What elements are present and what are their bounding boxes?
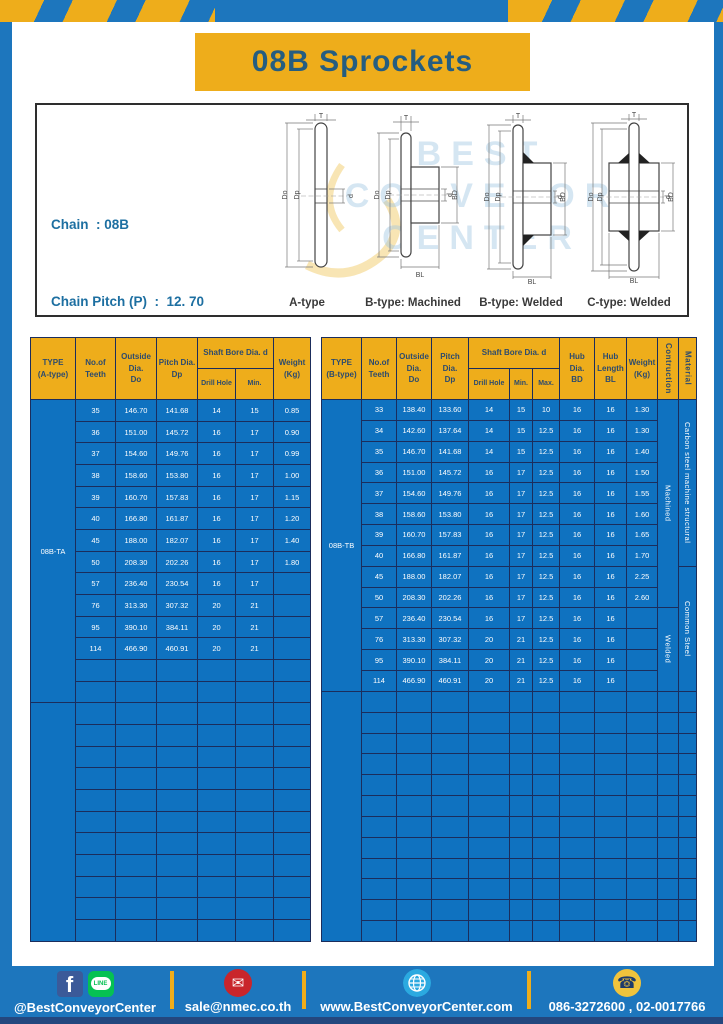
data-cell <box>116 681 157 703</box>
data-cell: 149.76 <box>157 443 198 465</box>
data-cell <box>560 754 595 775</box>
data-cell <box>432 879 469 900</box>
data-cell <box>658 691 679 712</box>
data-cell <box>510 691 533 712</box>
data-cell: 202.26 <box>432 587 469 608</box>
data-cell <box>469 796 510 817</box>
dim-label-bl: BL <box>528 279 537 285</box>
data-cell: 16 <box>198 486 236 508</box>
data-cell <box>76 725 116 747</box>
data-cell: 153.80 <box>432 504 469 525</box>
data-cell: 2.60 <box>627 587 658 608</box>
column-header: TYPE(A-type) <box>31 338 76 400</box>
data-cell: 34 <box>362 420 397 441</box>
data-cell <box>658 858 679 879</box>
data-cell <box>469 754 510 775</box>
data-cell: 16 <box>560 504 595 525</box>
data-cell <box>595 712 627 733</box>
data-cell <box>362 754 397 775</box>
data-cell <box>510 900 533 921</box>
data-cell: 16 <box>198 508 236 530</box>
data-cell <box>560 733 595 754</box>
data-cell <box>362 775 397 796</box>
data-cell <box>76 703 116 725</box>
data-cell: 1.50 <box>627 462 658 483</box>
data-cell: 154.60 <box>397 483 432 504</box>
data-cell: 16 <box>560 587 595 608</box>
data-cell <box>560 775 595 796</box>
data-cell <box>627 858 658 879</box>
data-cell: 16 <box>198 443 236 465</box>
drawing-caption: B-type: Machined <box>365 297 461 309</box>
data-cell <box>274 898 311 920</box>
b-type-machined-drawing: T Do Dp d <box>363 111 463 309</box>
data-cell: 151.00 <box>116 421 157 443</box>
email-glyph: ✉ <box>232 974 245 992</box>
data-cell <box>362 921 397 942</box>
data-cell <box>627 733 658 754</box>
data-cell <box>469 691 510 712</box>
data-cell <box>533 816 560 837</box>
data-cell <box>595 837 627 858</box>
data-cell: 1.70 <box>627 545 658 566</box>
data-cell <box>198 898 236 920</box>
data-cell <box>198 876 236 898</box>
column-header: OutsideDia.Do <box>397 338 432 400</box>
data-cell <box>362 837 397 858</box>
data-cell: 146.70 <box>116 400 157 422</box>
data-cell: 137.64 <box>432 420 469 441</box>
data-cell: 142.60 <box>397 420 432 441</box>
phone-icon: ☎ <box>613 969 641 997</box>
data-cell <box>432 816 469 837</box>
drawing-caption: C-type: Welded <box>587 297 671 309</box>
data-cell <box>157 876 198 898</box>
column-header: Pitch Dia.Dp <box>432 338 469 400</box>
spec-line: Chain : 08B <box>51 212 276 238</box>
data-cell <box>274 660 311 682</box>
data-cell <box>658 816 679 837</box>
data-cell <box>560 712 595 733</box>
data-cell <box>432 733 469 754</box>
data-cell: 157.83 <box>157 486 198 508</box>
construction-cell: Welded <box>658 608 679 691</box>
data-cell <box>595 733 627 754</box>
data-cell: 166.80 <box>397 545 432 566</box>
data-cell <box>116 725 157 747</box>
data-cell <box>560 879 595 900</box>
data-cell: 313.30 <box>397 629 432 650</box>
data-cell <box>274 920 311 942</box>
data-cell: 384.11 <box>432 650 469 671</box>
data-cell: 16 <box>560 608 595 629</box>
data-cell: 466.90 <box>397 670 432 691</box>
data-cell: 16 <box>560 400 595 421</box>
data-cell: 145.72 <box>157 421 198 443</box>
data-cell: 17 <box>510 587 533 608</box>
data-cell: 161.87 <box>432 545 469 566</box>
data-cell: 17 <box>236 573 274 595</box>
data-cell <box>157 660 198 682</box>
data-cell: 133.60 <box>432 400 469 421</box>
data-cell <box>510 712 533 733</box>
data-cell: 1.30 <box>627 400 658 421</box>
data-cell <box>658 796 679 817</box>
data-cell <box>595 691 627 712</box>
data-cell <box>157 898 198 920</box>
title-banner: 08B Sprockets <box>195 33 530 91</box>
data-cell: 20 <box>469 670 510 691</box>
data-cell: 20 <box>469 629 510 650</box>
data-cell: 15 <box>510 400 533 421</box>
data-cell: 2.25 <box>627 566 658 587</box>
spec-line: Chain Pitch (P) : 12. 70 <box>51 289 276 315</box>
data-cell: 1.20 <box>274 508 311 530</box>
dim-label-do: Do <box>374 190 381 199</box>
data-cell <box>397 837 432 858</box>
data-cell: 188.00 <box>397 566 432 587</box>
dim-label-bd: BD <box>452 190 459 200</box>
data-cell: 188.00 <box>116 530 157 552</box>
data-cell <box>198 790 236 812</box>
data-cell: 16 <box>560 441 595 462</box>
data-cell <box>157 681 198 703</box>
data-cell <box>679 900 697 921</box>
footer-phone: ☎ 086-3272600 , 02-0017766 <box>531 966 723 1017</box>
data-cell <box>362 858 397 879</box>
data-cell <box>274 595 311 617</box>
data-cell: 12.5 <box>533 462 560 483</box>
data-cell: 114 <box>76 638 116 660</box>
data-cell: 16 <box>595 441 627 462</box>
data-cell <box>362 712 397 733</box>
data-cell: 160.70 <box>397 525 432 546</box>
data-cell: 0.85 <box>274 400 311 422</box>
data-cell: 0.99 <box>274 443 311 465</box>
data-cell: 21 <box>236 638 274 660</box>
data-cell <box>76 660 116 682</box>
data-cell <box>679 879 697 900</box>
dim-label-dp: Dp <box>294 190 301 199</box>
data-cell <box>533 921 560 942</box>
data-cell <box>432 858 469 879</box>
data-cell <box>198 811 236 833</box>
data-cell: 460.91 <box>432 670 469 691</box>
data-cell: 236.40 <box>116 573 157 595</box>
data-cell: 12.5 <box>533 504 560 525</box>
data-cell: 36 <box>362 462 397 483</box>
line-icon: LINE <box>88 971 114 997</box>
data-cell <box>510 796 533 817</box>
catalog-page: 08B Sprockets BEST CONVEYOR CENTER Chain… <box>0 0 723 1024</box>
data-cell: 37 <box>76 443 116 465</box>
data-cell: 384.11 <box>157 616 198 638</box>
data-cell <box>157 768 198 790</box>
data-cell: 21 <box>510 650 533 671</box>
data-cell <box>274 855 311 877</box>
phone-numbers: 086-3272600 , 02-0017766 <box>549 999 706 1014</box>
data-cell <box>469 858 510 879</box>
footer-bottom-strip <box>0 1017 723 1024</box>
content-area: 08B Sprockets BEST CONVEYOR CENTER Chain… <box>12 22 714 966</box>
data-cell: 0.90 <box>274 421 311 443</box>
column-header: Shaft Bore Dia. d <box>469 338 560 369</box>
data-cell <box>432 775 469 796</box>
data-cell <box>679 816 697 837</box>
data-cell: 12.5 <box>533 650 560 671</box>
data-cell <box>560 816 595 837</box>
data-cell <box>627 796 658 817</box>
data-cell <box>679 754 697 775</box>
data-cell: 154.60 <box>116 443 157 465</box>
data-cell <box>76 746 116 768</box>
data-cell: 158.60 <box>397 504 432 525</box>
data-cell <box>627 670 658 691</box>
data-cell: 166.80 <box>116 508 157 530</box>
data-cell: 16 <box>595 650 627 671</box>
dim-label-t: T <box>516 113 521 120</box>
data-cell: 17 <box>236 443 274 465</box>
data-cell <box>595 816 627 837</box>
data-cell: 17 <box>510 462 533 483</box>
data-cell: 12.5 <box>533 629 560 650</box>
data-cell <box>533 837 560 858</box>
data-cell <box>362 900 397 921</box>
footer-email: ✉ sale@nmec.co.th <box>174 966 302 1017</box>
data-cell: 12.5 <box>533 441 560 462</box>
data-cell: 36 <box>76 421 116 443</box>
data-cell: 1.30 <box>627 420 658 441</box>
data-cell: 16 <box>595 400 627 421</box>
social-handle: @BestConveyorCenter <box>14 1000 156 1015</box>
data-cell: 35 <box>362 441 397 462</box>
data-cell <box>510 816 533 837</box>
data-cell: 16 <box>560 525 595 546</box>
data-cell <box>679 837 697 858</box>
data-cell <box>510 775 533 796</box>
data-cell <box>157 790 198 812</box>
data-cell <box>560 900 595 921</box>
data-cell <box>469 775 510 796</box>
data-cell: 17 <box>510 483 533 504</box>
data-cell <box>116 660 157 682</box>
data-cell: 16 <box>595 566 627 587</box>
data-cell <box>397 775 432 796</box>
data-cell: 15 <box>510 441 533 462</box>
data-cell: 15 <box>236 400 274 422</box>
data-cell <box>595 754 627 775</box>
data-cell <box>432 900 469 921</box>
data-cell <box>560 858 595 879</box>
email-address: sale@nmec.co.th <box>185 999 292 1014</box>
data-cell: 390.10 <box>116 616 157 638</box>
data-cell: 16 <box>595 608 627 629</box>
technical-drawing-box: BEST CONVEYOR CENTER Chain : 08B Chain P… <box>35 103 689 317</box>
dim-label-bl: BL <box>416 272 425 279</box>
data-cell <box>116 920 157 942</box>
data-cell <box>236 876 274 898</box>
material-cell: Carbon steel machine structural <box>679 400 697 567</box>
data-cell <box>157 855 198 877</box>
data-cell: 76 <box>76 595 116 617</box>
data-cell: 16 <box>595 504 627 525</box>
data-cell <box>533 796 560 817</box>
data-cell <box>533 900 560 921</box>
data-cell <box>658 879 679 900</box>
data-cell <box>469 921 510 942</box>
data-cell <box>533 691 560 712</box>
data-cell: 39 <box>76 486 116 508</box>
a-type-table: TYPE(A-type)No.ofTeethOutsideDia.DoPitch… <box>30 337 311 942</box>
data-cell: 12.5 <box>533 670 560 691</box>
data-cell <box>533 858 560 879</box>
data-cell <box>198 681 236 703</box>
data-cell <box>397 796 432 817</box>
data-cell <box>627 650 658 671</box>
data-cell <box>595 775 627 796</box>
data-cell: 16 <box>560 483 595 504</box>
column-header: Pitch Dia.Dp <box>157 338 198 400</box>
data-cell: 208.30 <box>397 587 432 608</box>
data-cell <box>469 816 510 837</box>
data-cell: 390.10 <box>397 650 432 671</box>
data-cell: 16 <box>469 525 510 546</box>
type-cell: 08B-TB <box>322 400 362 692</box>
data-cell: 460.91 <box>157 638 198 660</box>
data-cell <box>76 833 116 855</box>
data-cell <box>533 775 560 796</box>
column-header: No.ofTeeth <box>76 338 116 400</box>
data-cell <box>362 879 397 900</box>
b-type-table: TYPE(B-type)No.ofTeethOutsideDia.DoPitch… <box>321 337 697 942</box>
a-type-drawing: T Do Dp d A-type <box>259 111 355 309</box>
data-cell: 40 <box>362 545 397 566</box>
data-cell: 160.70 <box>116 486 157 508</box>
data-cell <box>76 876 116 898</box>
dim-label-t: T <box>632 112 637 119</box>
data-cell: 35 <box>76 400 116 422</box>
data-cell <box>198 660 236 682</box>
data-cell <box>236 660 274 682</box>
data-cell <box>76 768 116 790</box>
data-cell <box>627 879 658 900</box>
data-cell: 17 <box>236 530 274 552</box>
data-cell: 38 <box>362 504 397 525</box>
data-cell <box>679 712 697 733</box>
data-cell: 20 <box>198 616 236 638</box>
phone-glyph: ☎ <box>617 973 637 993</box>
data-cell <box>533 733 560 754</box>
data-cell: 202.26 <box>157 551 198 573</box>
data-cell: 16 <box>560 420 595 441</box>
data-cell <box>679 775 697 796</box>
material-cell: Common Steel <box>679 566 697 691</box>
data-cell: 208.30 <box>116 551 157 573</box>
data-cell: 16 <box>595 525 627 546</box>
data-cell: 50 <box>362 587 397 608</box>
column-header: OutsideDia.Do <box>116 338 157 400</box>
data-cell <box>116 898 157 920</box>
data-cell: 12.5 <box>533 608 560 629</box>
data-cell <box>116 703 157 725</box>
data-cell: 38 <box>76 465 116 487</box>
data-cell <box>595 921 627 942</box>
data-cell: 17 <box>236 508 274 530</box>
data-cell <box>595 858 627 879</box>
data-cell: 17 <box>236 551 274 573</box>
footer: f LINE @BestConveyorCenter ✉ sale@nmec.c… <box>0 966 723 1024</box>
line-bubble-text: LINE <box>91 977 111 990</box>
data-cell <box>274 768 311 790</box>
column-header: Material <box>679 338 697 400</box>
data-cell <box>510 879 533 900</box>
data-cell <box>274 833 311 855</box>
data-cell: 33 <box>362 400 397 421</box>
data-cell <box>432 796 469 817</box>
data-cell <box>76 898 116 920</box>
data-cell: 16 <box>595 670 627 691</box>
data-cell: 157.83 <box>432 525 469 546</box>
data-cell <box>274 876 311 898</box>
data-cell: 12.5 <box>533 525 560 546</box>
data-cell: 1.40 <box>627 441 658 462</box>
type-cell: 08B-TA <box>31 400 76 703</box>
data-cell: 16 <box>198 465 236 487</box>
data-cell: 17 <box>510 608 533 629</box>
data-cell: 37 <box>362 483 397 504</box>
column-subheader: Drill Hole <box>469 369 510 400</box>
data-cell <box>198 703 236 725</box>
data-cell <box>76 855 116 877</box>
data-cell <box>560 796 595 817</box>
data-cell: 1.65 <box>627 525 658 546</box>
data-cell <box>510 754 533 775</box>
data-cell: 1.00 <box>274 465 311 487</box>
data-cell: 16 <box>469 504 510 525</box>
data-cell: 466.90 <box>116 638 157 660</box>
data-cell <box>658 754 679 775</box>
data-cell: 16 <box>595 629 627 650</box>
top-bar <box>0 0 723 22</box>
data-cell: 21 <box>236 616 274 638</box>
corner-stripes-left <box>0 0 215 22</box>
data-cell: 16 <box>595 483 627 504</box>
data-cell <box>274 725 311 747</box>
data-cell: 45 <box>76 530 116 552</box>
data-cell <box>397 733 432 754</box>
data-cell <box>236 703 274 725</box>
data-cell: 20 <box>198 638 236 660</box>
data-cell: 307.32 <box>432 629 469 650</box>
data-cell <box>157 920 198 942</box>
data-cell: 16 <box>560 545 595 566</box>
data-cell <box>397 900 432 921</box>
column-header: Hub Dia.BD <box>560 338 595 400</box>
data-cell: 45 <box>362 566 397 587</box>
data-cell: 230.54 <box>432 608 469 629</box>
data-cell <box>595 796 627 817</box>
drawing-caption: B-type: Welded <box>479 297 563 309</box>
data-cell <box>679 733 697 754</box>
data-cell <box>198 725 236 747</box>
data-cell <box>679 858 697 879</box>
data-cell: 57 <box>76 573 116 595</box>
data-cell: 14 <box>469 441 510 462</box>
data-cell: 307.32 <box>157 595 198 617</box>
dim-label-bd: BD <box>560 192 567 202</box>
data-cell <box>236 790 274 812</box>
dim-label-d: d <box>348 194 355 198</box>
